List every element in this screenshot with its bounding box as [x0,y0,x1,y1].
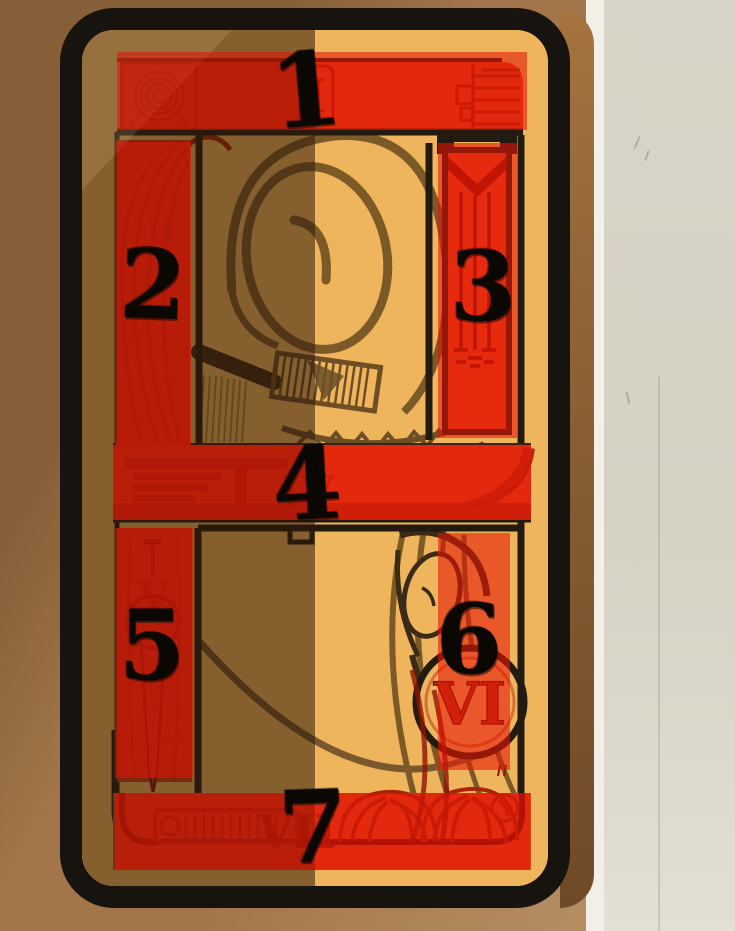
numeral-vi: VI [433,670,506,738]
pillar-column [437,132,517,432]
game-screen: VI [0,0,735,931]
tarot-card[interactable]: VI [60,8,570,908]
card-shadow-half [82,30,315,886]
background-wall-right [604,0,735,931]
card-artwork: VI [82,30,548,886]
wall-seam-line [658,376,660,931]
